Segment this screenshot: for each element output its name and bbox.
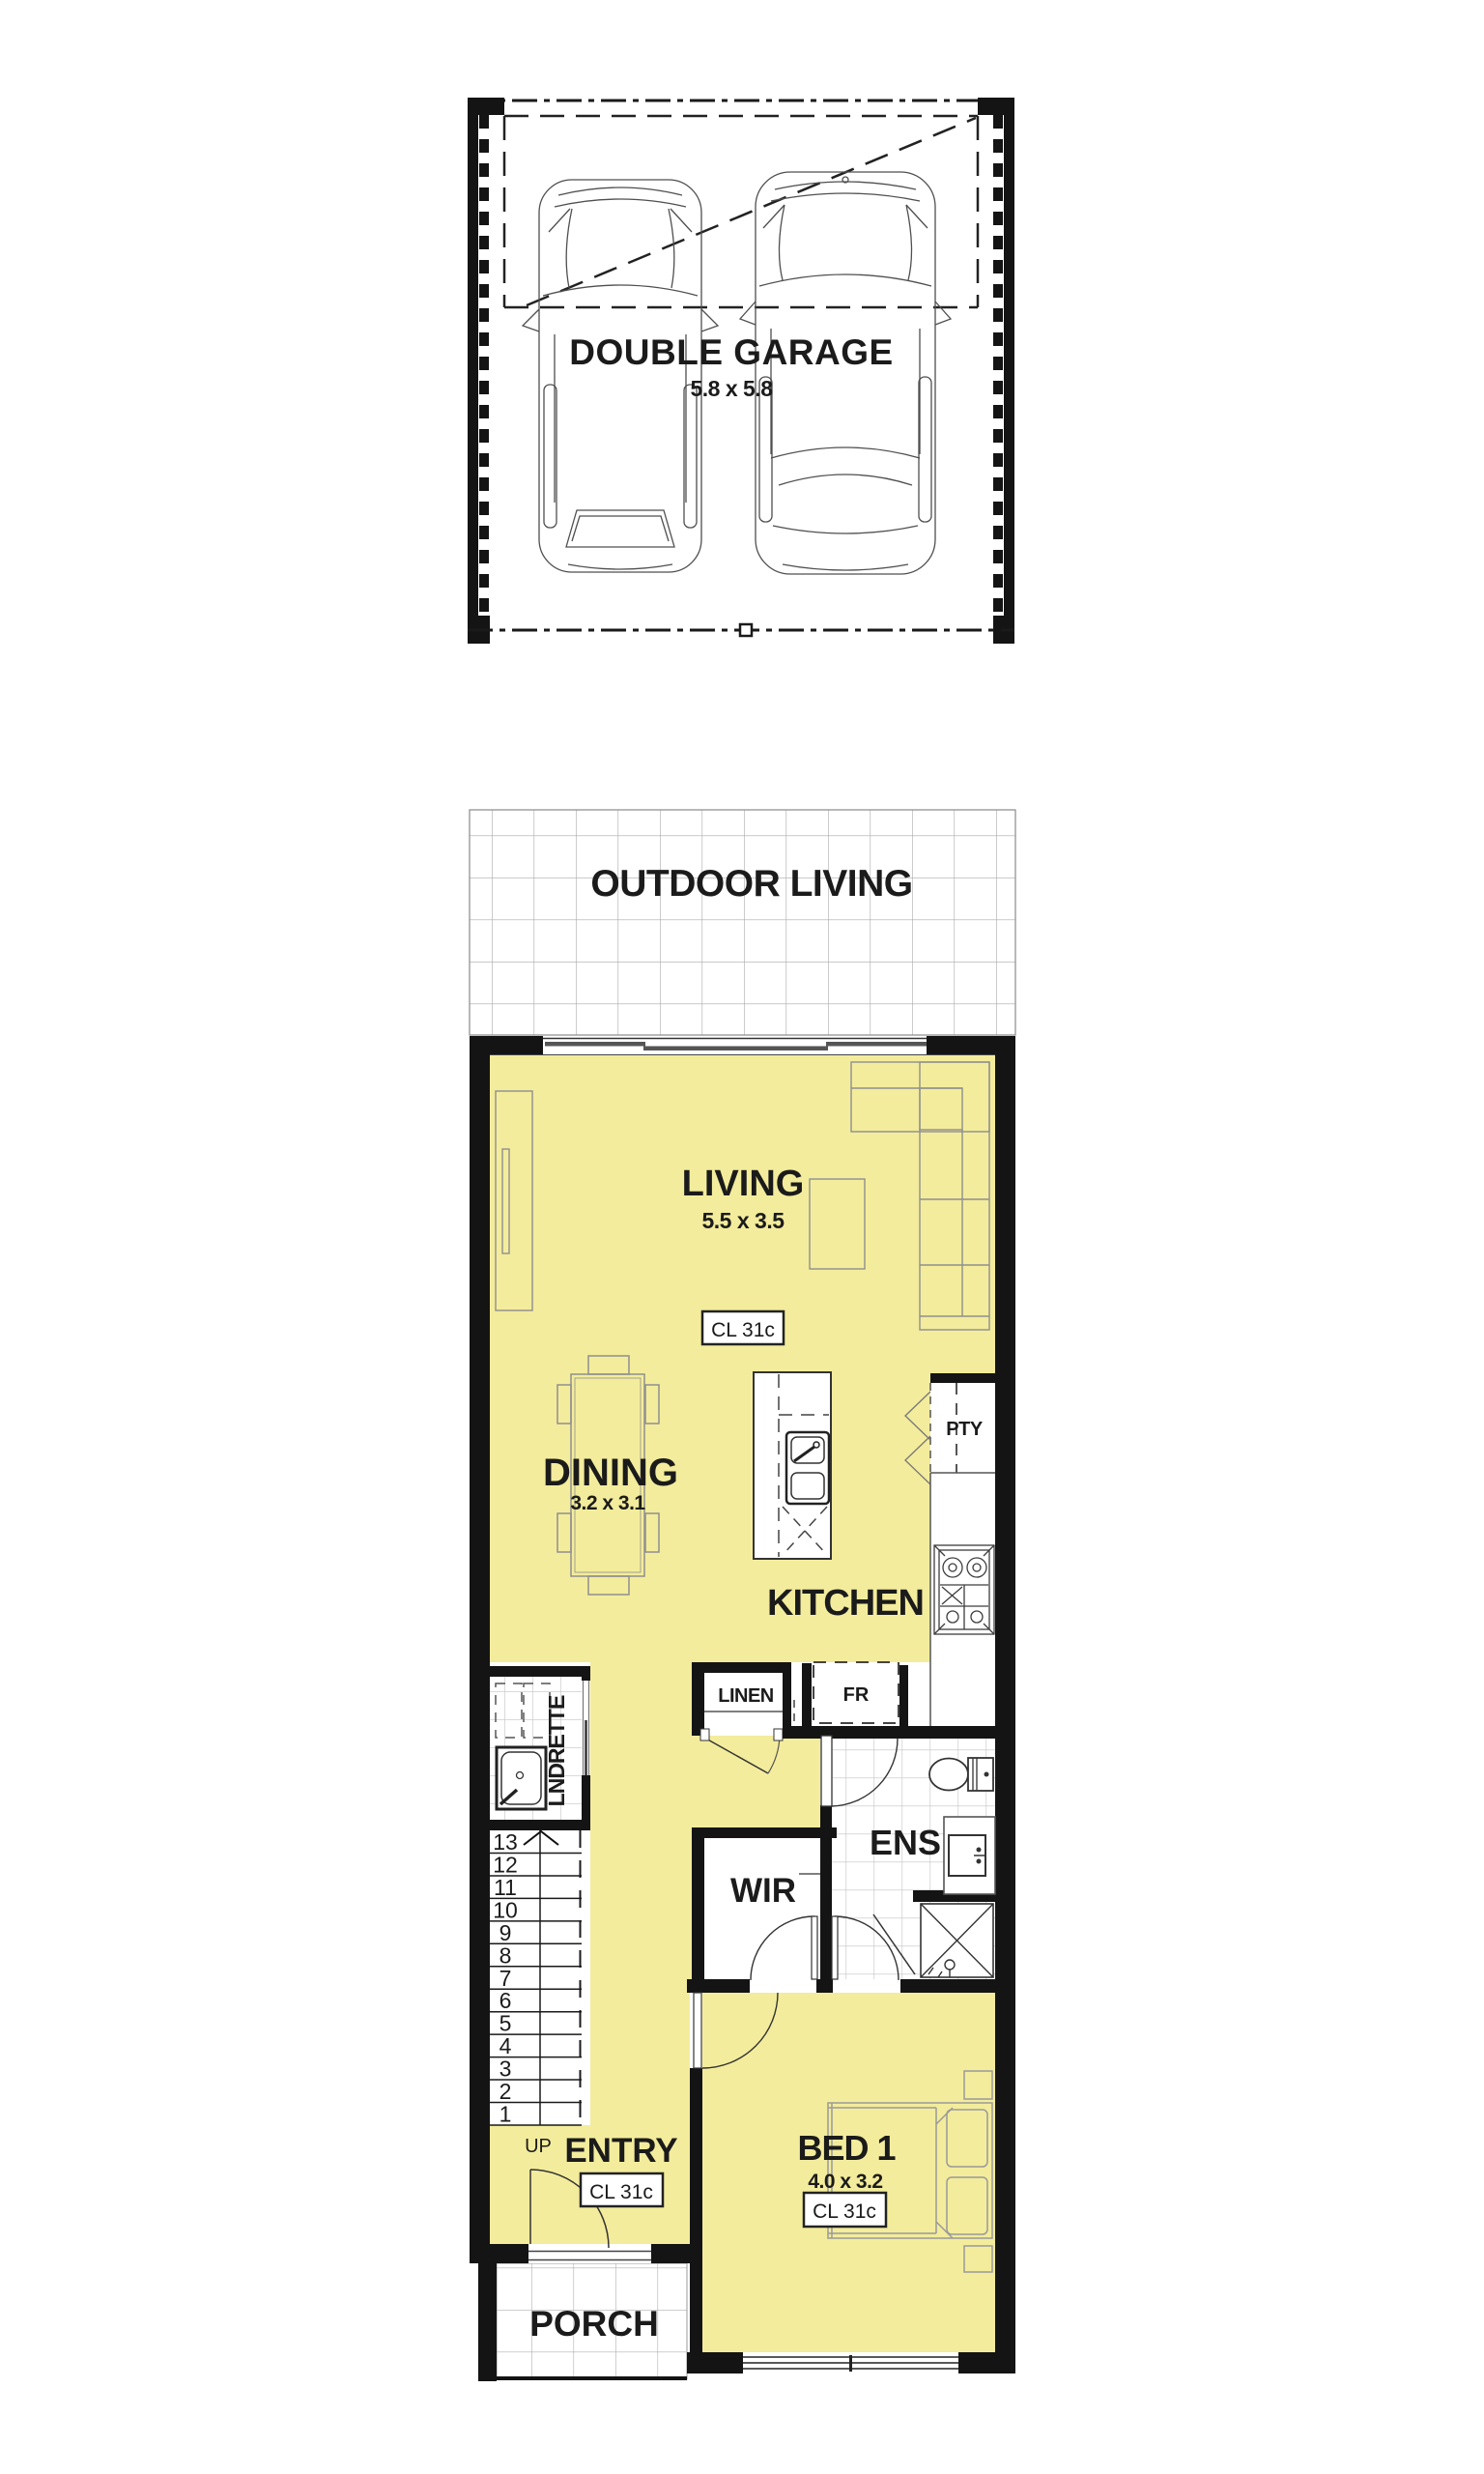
svg-text:BED 1: BED 1 xyxy=(797,2128,896,2168)
svg-text:CL 31c: CL 31c xyxy=(711,1319,775,1341)
svg-text:LINEN: LINEN xyxy=(718,1685,774,1707)
svg-text:FR: FR xyxy=(843,1684,870,1706)
svg-text:ENTRY: ENTRY xyxy=(564,2132,677,2170)
svg-text:5.8 x 5.8: 5.8 x 5.8 xyxy=(690,376,773,401)
svg-text:10: 10 xyxy=(493,1897,518,1922)
svg-text:OUTDOOR LIVING: OUTDOOR LIVING xyxy=(590,863,912,905)
svg-text:CL 31c: CL 31c xyxy=(813,2201,876,2223)
svg-text:9: 9 xyxy=(499,1920,512,1945)
svg-text:11: 11 xyxy=(494,1875,517,1900)
svg-text:WIR: WIR xyxy=(730,1872,796,1910)
svg-text:6: 6 xyxy=(499,1988,512,2013)
svg-text:3: 3 xyxy=(499,2057,512,2082)
svg-text:KITCHEN: KITCHEN xyxy=(767,1583,924,1624)
svg-text:UP: UP xyxy=(525,2136,552,2157)
svg-text:LNDRETTE: LNDRETTE xyxy=(544,1695,569,1806)
svg-text:4.0 x 3.2: 4.0 x 3.2 xyxy=(808,2171,882,2193)
svg-text:5.5 x 3.5: 5.5 x 3.5 xyxy=(701,1208,785,1233)
svg-text:PTY: PTY xyxy=(946,1419,984,1440)
svg-text:DOUBLE GARAGE: DOUBLE GARAGE xyxy=(569,332,893,372)
svg-text:4: 4 xyxy=(499,2033,512,2058)
svg-text:7: 7 xyxy=(499,1966,512,1991)
svg-text:PORCH: PORCH xyxy=(529,2304,659,2344)
svg-text:12: 12 xyxy=(493,1853,518,1878)
svg-text:13: 13 xyxy=(493,1829,518,1855)
svg-text:ENS: ENS xyxy=(870,1823,941,1862)
svg-text:DINING: DINING xyxy=(543,1452,678,1494)
svg-text:2: 2 xyxy=(499,2079,512,2104)
svg-text:3.2 x 3.1: 3.2 x 3.1 xyxy=(570,1492,645,1514)
svg-text:5: 5 xyxy=(499,2011,512,2036)
svg-text:LIVING: LIVING xyxy=(682,1164,805,1204)
svg-text:1: 1 xyxy=(499,2102,512,2127)
svg-text:CL 31c: CL 31c xyxy=(589,2181,653,2203)
svg-text:8: 8 xyxy=(499,1942,512,1968)
